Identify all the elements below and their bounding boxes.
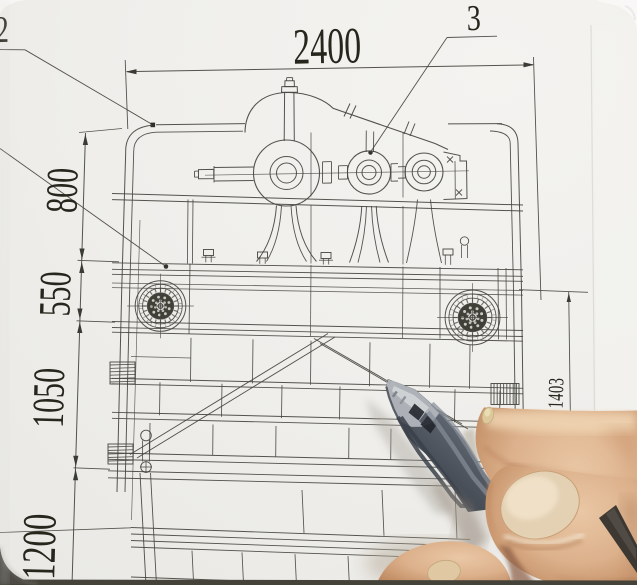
svg-text:800: 800 [38, 167, 89, 213]
svg-text:2400: 2400 [293, 18, 362, 76]
svg-text:3: 3 [466, 0, 481, 39]
svg-text:1050: 1050 [24, 367, 75, 428]
svg-text:1403: 1403 [544, 377, 569, 409]
svg-text:550: 550 [31, 271, 82, 317]
svg-text:1200: 1200 [11, 513, 66, 580]
